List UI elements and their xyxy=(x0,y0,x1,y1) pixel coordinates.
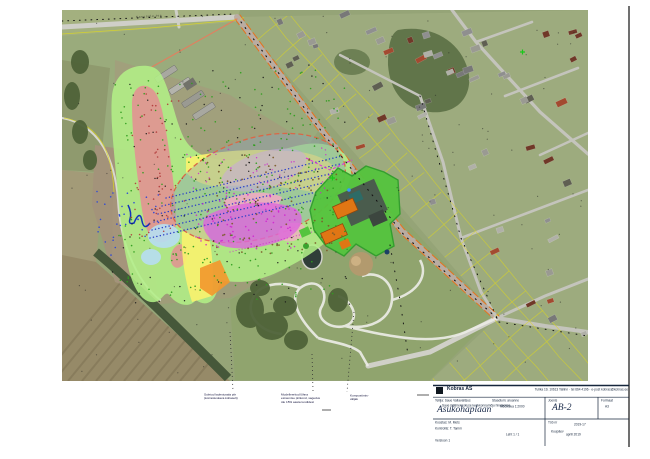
drawing-sheet: Kasesalu tee Suletud ladestusala piir (k… xyxy=(0,0,650,459)
company-logo xyxy=(436,387,443,394)
drawing-no: AB-2 xyxy=(552,403,572,413)
work-no-label: Töö nr xyxy=(548,421,557,425)
annotation-block-3: Kompostimis- väljak xyxy=(350,394,369,401)
work-no-value: 2019-17 xyxy=(574,423,586,427)
annotation-line: üle 15% aasta tundidest xyxy=(281,400,320,404)
format-value: A3 xyxy=(605,405,609,409)
drawing-no-label: Joonis xyxy=(548,399,557,403)
annotation-block-2: Modelleeritud lõhna esinemise piirkond, … xyxy=(281,393,320,404)
client-line: Tellija: Saue Vallavalitsus xyxy=(435,399,471,403)
annotation-line: (korrastuskava kohaselt) xyxy=(204,397,238,401)
drawing-title: Asukohaplaan xyxy=(437,405,491,415)
company-name: Kobras AS xyxy=(447,386,472,392)
company-contact: Tulika 19, 10613 Tallinn · tel 664 4196 … xyxy=(500,388,628,392)
format-label: Formaat xyxy=(601,399,613,403)
stage-line: Staadium: aruanne xyxy=(492,399,519,403)
revision-line: Versioon 1 xyxy=(435,439,450,443)
sheet-line: Leht 1 / 1 xyxy=(506,433,519,437)
date-value: aprill 2019 xyxy=(566,433,581,437)
scale-line: Mõõtkava 1:2000 xyxy=(500,405,525,409)
annotation-block-1: Suletud ladestusala piir (korrastuskava … xyxy=(204,393,238,400)
date-label: Kuupäev xyxy=(551,430,564,434)
annotation-line: väljak xyxy=(350,398,369,402)
author-line-1: Koostas: M. Mets xyxy=(435,421,460,425)
author-line-2: Kontrollis: T. Tamm xyxy=(435,427,462,431)
